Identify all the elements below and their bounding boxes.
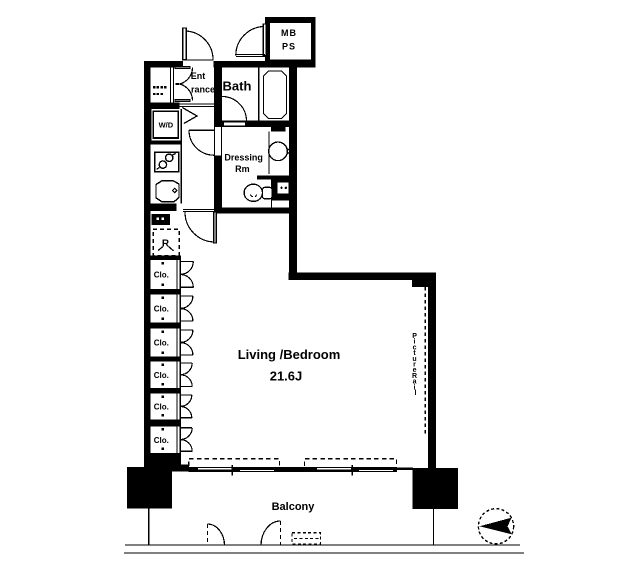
svg-text:Balcony: Balcony <box>272 501 316 513</box>
svg-text:Ent: Ent <box>191 71 206 81</box>
svg-text:Clo.: Clo. <box>154 403 169 412</box>
svg-text:rance: rance <box>191 85 215 95</box>
svg-text:21.6J: 21.6J <box>270 369 303 384</box>
svg-text:Bath: Bath <box>223 79 252 94</box>
svg-text:MB: MB <box>281 28 297 38</box>
svg-text:Clo.: Clo. <box>154 436 169 445</box>
svg-text:Clo.: Clo. <box>154 271 169 280</box>
svg-text:Rm: Rm <box>235 164 250 174</box>
svg-text:W/D: W/D <box>159 120 174 129</box>
svg-text:Clo.: Clo. <box>154 305 169 314</box>
svg-text:Living /Bedroom: Living /Bedroom <box>238 347 341 362</box>
svg-text:R: R <box>162 239 170 250</box>
svg-text:Clo.: Clo. <box>154 339 169 348</box>
svg-text:Dressing: Dressing <box>224 153 263 163</box>
svg-text:PS: PS <box>282 42 296 52</box>
svg-text:Clo.: Clo. <box>154 371 169 380</box>
